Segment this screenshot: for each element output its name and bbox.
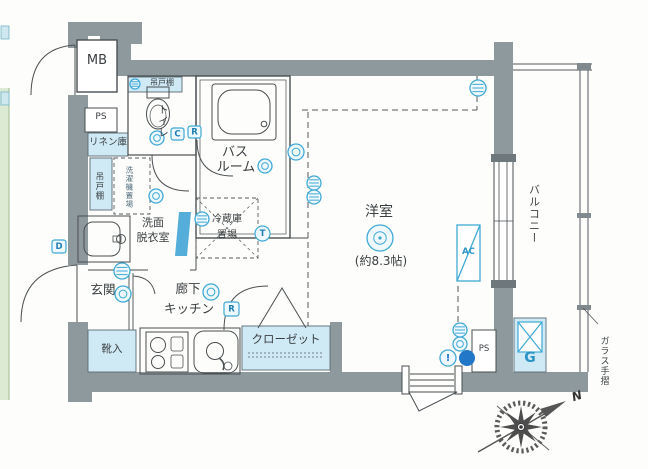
toilet-door-arc <box>152 155 189 191</box>
badge-t: T <box>255 226 270 241</box>
ceiling-light-icon <box>149 189 163 203</box>
bathtub-drain-icon <box>261 121 267 127</box>
svg-text:R: R <box>228 305 235 315</box>
badge-c: C <box>171 128 184 140</box>
svg-text:D: D <box>55 242 62 252</box>
hanging-cupboard-left-box <box>90 158 112 210</box>
switch-icon <box>307 176 321 190</box>
ac-provision <box>457 225 480 281</box>
washing-machine-space-box <box>114 158 150 214</box>
ceiling-light-icon <box>258 159 272 173</box>
svg-text:T: T <box>260 229 266 239</box>
bath-door-arc <box>197 140 233 176</box>
ceiling-light-icon <box>203 284 219 300</box>
scan-edge-strip <box>0 26 9 400</box>
balcony-window <box>491 154 516 288</box>
glass-rail-leader-line <box>583 308 598 324</box>
ceiling-light-icon <box>115 286 131 302</box>
compass-rose <box>478 401 566 452</box>
equipment-icons: ! <box>114 79 486 366</box>
vent-icon <box>195 212 209 226</box>
linen-closet-box <box>88 133 128 156</box>
bottom-window-door <box>402 366 462 411</box>
svg-text:C: C <box>174 130 180 140</box>
bottom-door-swing <box>409 392 457 411</box>
entrance-step-arc <box>133 276 155 294</box>
svg-text:R: R <box>191 128 198 138</box>
closet-folding-door <box>258 288 306 328</box>
bathtub-icon <box>212 84 276 140</box>
floor-plan: ! CRRDT MB PS リネン庫 吊戸棚 トイレ バス ルーム 洗濯機置場 … <box>0 0 648 469</box>
pipe-shaft-bottom <box>472 330 496 372</box>
pipe-shaft-top <box>85 108 117 132</box>
badge-r: R <box>188 126 201 138</box>
water-heater-icon <box>518 322 542 352</box>
alarm-icon: ! <box>440 350 456 366</box>
entrance-door-arc <box>21 265 77 322</box>
washroom-door-leaf <box>175 212 191 256</box>
ceiling-light-icon <box>453 337 467 351</box>
svg-text:!: ! <box>446 353 451 364</box>
vent-icon <box>470 80 486 96</box>
ceiling-dash-lines <box>302 76 477 330</box>
badge-r: R <box>224 302 239 316</box>
switch-icon <box>453 323 467 337</box>
faucet-icon <box>207 343 224 360</box>
ceiling-light-icon <box>288 144 304 160</box>
floor-plan-drawing: ! CRRDT <box>0 0 648 469</box>
switch-icon <box>307 190 321 204</box>
badge-d: D <box>52 240 66 253</box>
kitchen-sink-icon <box>194 331 238 373</box>
vent-icon <box>114 263 130 279</box>
kitchen-counter <box>140 328 240 374</box>
ceiling-light-icon <box>150 131 164 145</box>
mb-door-arc <box>31 45 75 95</box>
closet-box <box>242 326 330 370</box>
meter-box <box>77 40 117 92</box>
vent-icon <box>130 79 140 89</box>
shoe-box <box>88 330 136 372</box>
outlet-icon <box>459 350 475 366</box>
ceiling-rose-icon <box>367 225 393 251</box>
